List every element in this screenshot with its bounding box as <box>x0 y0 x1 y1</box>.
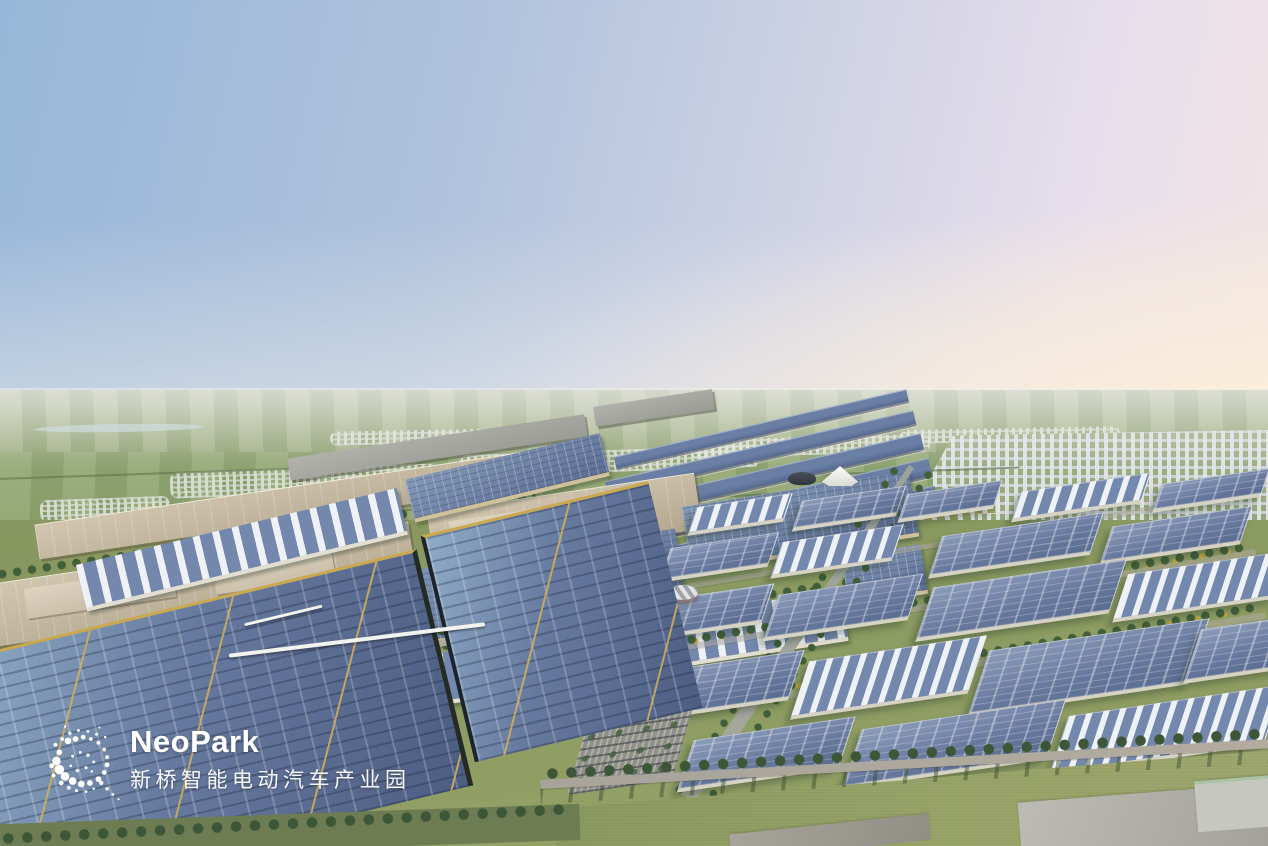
brand-name: NeoPark <box>130 724 259 760</box>
sunset-sky <box>0 0 1268 400</box>
neopark-logo: NeoPark 新桥智能电动汽车产业园 <box>44 710 464 820</box>
arena-building <box>788 472 816 485</box>
brand-subtitle: 新桥智能电动汽车产业园 <box>130 764 411 794</box>
concrete-slab <box>1194 775 1268 832</box>
neopark-logo-dots-icon <box>44 716 130 806</box>
aerial-rendering: NeoPark 新桥智能电动汽车产业园 <box>0 0 1268 846</box>
